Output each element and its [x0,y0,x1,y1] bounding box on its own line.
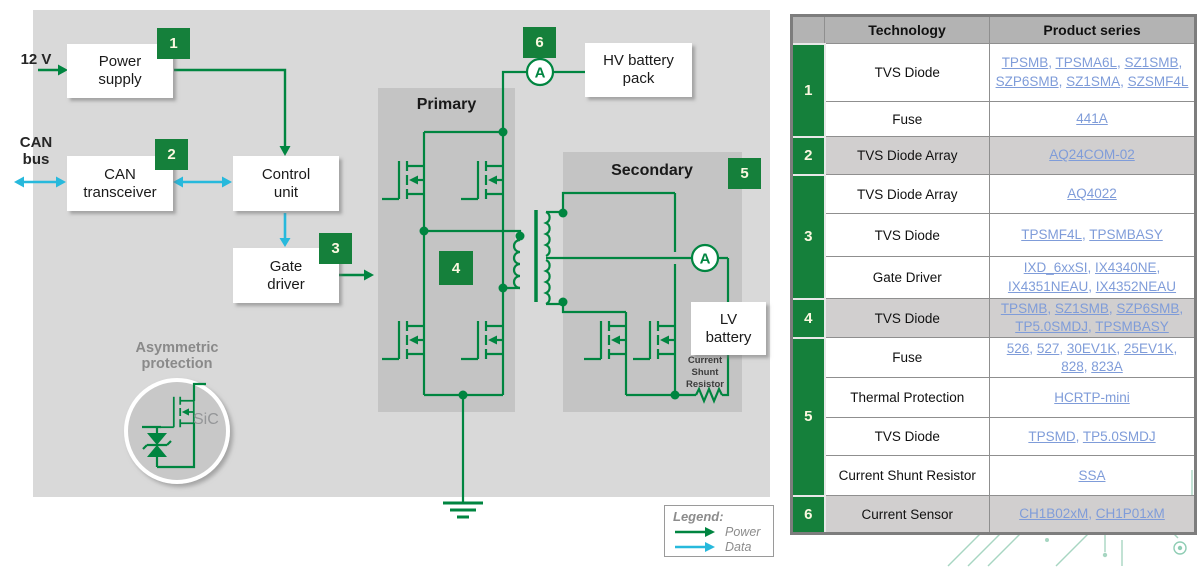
separator: , [1116,341,1124,356]
product-link[interactable]: SZ1SMA [1066,74,1120,89]
technology-cell: Gate Driver [825,257,990,299]
product-link[interactable]: IX4352NEAU [1096,279,1176,294]
product-series-cell: TPSMB, TPSMA6L, SZ1SMB, SZP6SMB, SZ1SMA,… [990,44,1196,102]
product-link[interactable]: TPSMBASY [1095,319,1169,334]
badge-4: 4 [439,251,473,285]
product-series-cell: SSA [990,456,1196,496]
badge-6: 6 [523,27,556,58]
header-technology: Technology [825,16,990,44]
product-link[interactable]: TP5.0SMDJ [1083,429,1156,444]
product-link[interactable]: SZ1SMB [1125,55,1179,70]
asymmetric-protection-label: Asymmetric protection [112,340,242,372]
legend-power-label: Power [725,525,760,539]
group-number-cell: 1 [792,44,825,137]
product-series-table: Technology Product series 1TVS DiodeTPSM… [790,14,1197,535]
product-link[interactable]: TPSMA6L [1055,55,1117,70]
separator: , [1173,341,1177,356]
separator: , [1157,260,1161,275]
product-series-cell: AQ24COM-02 [990,137,1196,175]
table-row: 6Current SensorCH1B02xM, CH1P01xM [792,496,1196,534]
table-header-row: Technology Product series [792,16,1196,44]
product-series-cell: 441A [990,102,1196,137]
separator: , [1076,429,1083,444]
separator: , [1120,74,1128,89]
group-number-cell: 2 [792,137,825,175]
header-number-cell [792,16,825,44]
technology-cell: TVS Diode [825,418,990,456]
table-row: Fuse441A [792,102,1196,137]
product-series-cell: TPSMF4L, TPSMBASY [990,214,1196,257]
separator: , [1179,301,1183,316]
technology-cell: Current Sensor [825,496,990,534]
table-row: 2TVS Diode ArrayAQ24COM-02 [792,137,1196,175]
product-link[interactable]: IX4351NEAU [1008,279,1088,294]
sic-label: SiC [193,411,219,429]
secondary-title: Secondary [577,162,727,180]
group-number-cell: 3 [792,175,825,299]
data-arrow-icon [673,541,717,553]
product-link[interactable]: 828 [1061,359,1084,374]
table-row: 5Fuse526, 527, 30EV1K, 25EV1K, 828, 823A [792,338,1196,378]
product-link[interactable]: 526 [1007,341,1030,356]
product-link[interactable]: 527 [1037,341,1060,356]
can-bus-label: CAN bus [10,134,62,169]
technology-cell: TVS Diode Array [825,175,990,214]
hv-battery-box: HV battery pack [585,43,692,97]
power-arrow-icon [673,526,717,538]
table-row: 1TVS DiodeTPSMB, TPSMA6L, SZ1SMB, SZP6SM… [792,44,1196,102]
product-link[interactable]: SZ1SMB [1055,301,1109,316]
technology-cell: Thermal Protection [825,378,990,418]
table-row: TVS DiodeTPSMF4L, TPSMBASY [792,214,1196,257]
table-row: 3TVS Diode ArrayAQ4022 [792,175,1196,214]
badge-2: 2 [155,139,188,170]
product-link[interactable]: 30EV1K [1067,341,1117,356]
table-row: Current Shunt ResistorSSA [792,456,1196,496]
separator: , [1059,341,1067,356]
table-row: 4TVS DiodeTPSMB, SZ1SMB, SZP6SMB, TP5.0S… [792,299,1196,338]
legend-data-label: Data [725,540,751,554]
product-series-cell: HCRTP-mini [990,378,1196,418]
table-row: TVS DiodeTPSMD, TP5.0SMDJ [792,418,1196,456]
technology-cell: TVS Diode [825,299,990,338]
badge-3: 3 [319,233,352,264]
separator: , [1059,74,1067,89]
product-link[interactable]: IXD_6xxSI [1024,260,1088,275]
product-link[interactable]: HCRTP-mini [1054,390,1130,405]
product-series-cell: AQ4022 [990,175,1196,214]
technology-cell: Current Shunt Resistor [825,456,990,496]
separator: , [1088,506,1096,521]
product-link[interactable]: 25EV1K [1124,341,1174,356]
product-link[interactable]: IX4340NE [1095,260,1157,275]
control-unit-box: Control unit [233,156,339,211]
primary-title: Primary [378,96,515,114]
product-link[interactable]: TP5.0SMDJ [1015,319,1088,334]
table-row: Gate DriverIXD_6xxSI, IX4340NE, IX4351NE… [792,257,1196,299]
technology-cell: TVS Diode [825,44,990,102]
product-series-cell: TPSMD, TP5.0SMDJ [990,418,1196,456]
product-link[interactable]: TPSMBASY [1089,227,1163,242]
product-link[interactable]: AQ4022 [1067,186,1117,201]
legend-box: Legend: Power Data [664,505,774,557]
page: A A Power supply CAN transceiver Control… [0,0,1200,567]
product-series-cell: TPSMB, SZ1SMB, SZP6SMB, TP5.0SMDJ, TPSMB… [990,299,1196,338]
product-link[interactable]: TPSMD [1028,429,1075,444]
separator: , [1179,55,1183,70]
separator: , [1088,279,1096,294]
product-link[interactable]: SZP6SMB [1116,301,1179,316]
current-shunt-resistor-label: Current Shunt Resistor [678,355,732,391]
product-link[interactable]: SSA [1078,468,1105,483]
product-link[interactable]: CH1P01xM [1096,506,1165,521]
product-series-cell: CH1B02xM, CH1P01xM [990,496,1196,534]
group-number-cell: 4 [792,299,825,338]
technology-cell: Fuse [825,102,990,137]
product-link[interactable]: SZP6SMB [996,74,1059,89]
group-number-cell: 6 [792,496,825,534]
lv-battery-box: LV battery [691,302,766,355]
product-table: Technology Product series 1TVS DiodeTPSM… [790,14,1197,535]
product-link[interactable]: 441A [1076,111,1108,126]
product-series-cell: IXD_6xxSI, IX4340NE, IX4351NEAU, IX4352N… [990,257,1196,299]
12v-label: 12 V [14,51,58,68]
table-row: Thermal ProtectionHCRTP-mini [792,378,1196,418]
badge-5: 5 [728,158,761,189]
product-link[interactable]: TPSMB [1002,55,1049,70]
product-series-cell: 526, 527, 30EV1K, 25EV1K, 828, 823A [990,338,1196,378]
product-link[interactable]: SZSMF4L [1128,74,1189,89]
separator: , [1029,341,1037,356]
separator: , [1117,55,1125,70]
product-link[interactable]: 823A [1091,359,1123,374]
product-link[interactable]: TPSMB [1001,301,1048,316]
product-table-body: 1TVS DiodeTPSMB, TPSMA6L, SZ1SMB, SZP6SM… [792,44,1196,534]
technology-cell: TVS Diode Array [825,137,990,175]
technology-cell: Fuse [825,338,990,378]
badge-1: 1 [157,28,190,59]
separator: , [1087,260,1095,275]
primary-block [378,88,515,412]
legend-title: Legend: [673,509,773,524]
technology-cell: TVS Diode [825,214,990,257]
separator: , [1047,301,1055,316]
group-number-cell: 5 [792,338,825,496]
product-link[interactable]: CH1B02xM [1019,506,1088,521]
product-link[interactable]: TPSMF4L [1021,227,1082,242]
header-product-series: Product series [990,16,1196,44]
product-link[interactable]: AQ24COM-02 [1049,147,1135,162]
